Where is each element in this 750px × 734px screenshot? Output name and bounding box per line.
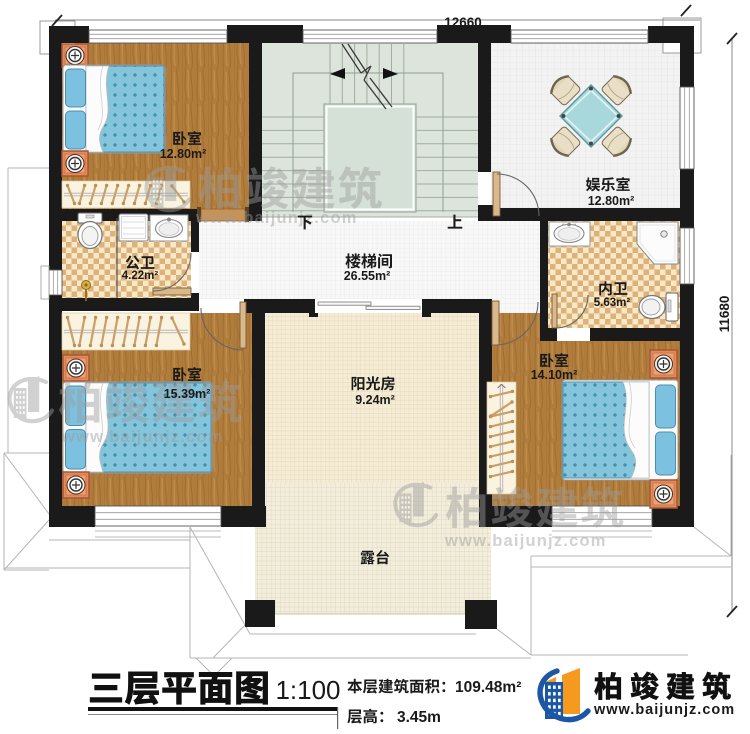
svg-text:www.baijunjz.com: www.baijunjz.com <box>444 532 607 550</box>
svg-text:www.baijunjz.com: www.baijunjz.com <box>593 702 735 718</box>
svg-text:26.55m²: 26.55m² <box>344 269 391 283</box>
svg-text:www.baijunjz.com: www.baijunjz.com <box>61 428 224 446</box>
svg-text:14.10m²: 14.10m² <box>531 368 578 382</box>
svg-text:5.63m²: 5.63m² <box>594 297 631 309</box>
svg-text:11680: 11680 <box>717 296 732 333</box>
svg-text:12.80m²: 12.80m² <box>160 147 207 161</box>
svg-text:12.80m²: 12.80m² <box>588 194 635 208</box>
svg-text:www.baijunjz.com: www.baijunjz.com <box>195 209 358 227</box>
svg-text:3.45m: 3.45m <box>397 709 441 726</box>
svg-text:109.48m²: 109.48m² <box>455 679 521 696</box>
svg-text:1:100: 1:100 <box>275 675 340 705</box>
svg-text:15.39m²: 15.39m² <box>164 387 211 401</box>
svg-text:4.22m²: 4.22m² <box>122 270 159 282</box>
svg-text:9.24m²: 9.24m² <box>355 393 395 407</box>
